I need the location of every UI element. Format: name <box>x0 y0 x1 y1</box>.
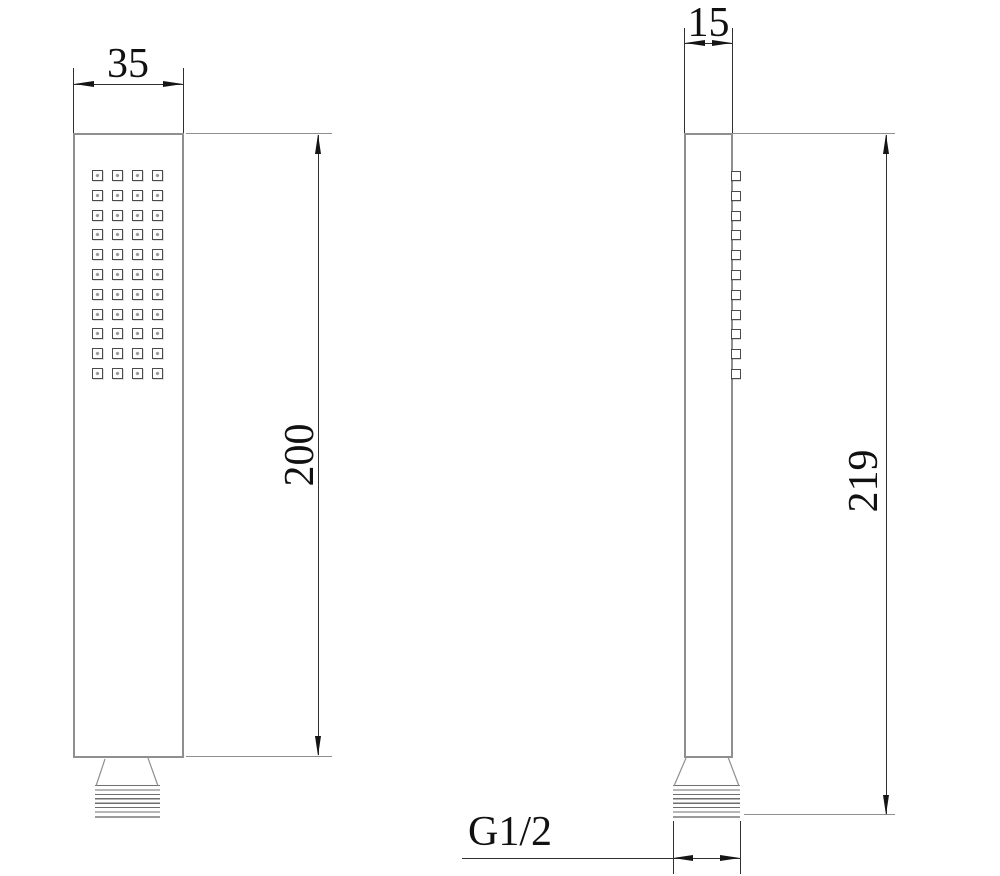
dim-219-ext-bottom <box>744 814 895 815</box>
dim-15-label: 15 <box>684 1 733 45</box>
dim-200-ext-top <box>186 133 332 134</box>
dim-35-ext-right <box>183 68 184 133</box>
technical-drawing-canvas: 35 200 15 219 G1/2 <box>0 0 1000 876</box>
dim-g12-ext-left <box>673 821 674 874</box>
dim-219-arrow-down <box>883 795 889 815</box>
dim-219-label: 219 <box>842 416 886 546</box>
dim-219-arrow-up <box>883 134 889 154</box>
dim-219-ext-top <box>733 133 895 134</box>
dim-g12-arrow-right <box>720 855 740 861</box>
dim-g12-label: G1/2 <box>430 810 590 854</box>
dim-200-arrow-down <box>315 736 321 756</box>
dim-35-label: 35 <box>73 42 183 86</box>
dim-g12-ext-right <box>740 821 741 874</box>
dim-g12-arrow-left <box>673 855 693 861</box>
dim-200-label: 200 <box>278 390 322 520</box>
dim-200-ext-bottom <box>186 756 332 757</box>
dim-200-arrow-up <box>315 134 321 154</box>
dim-g12-leader-line <box>462 858 740 859</box>
